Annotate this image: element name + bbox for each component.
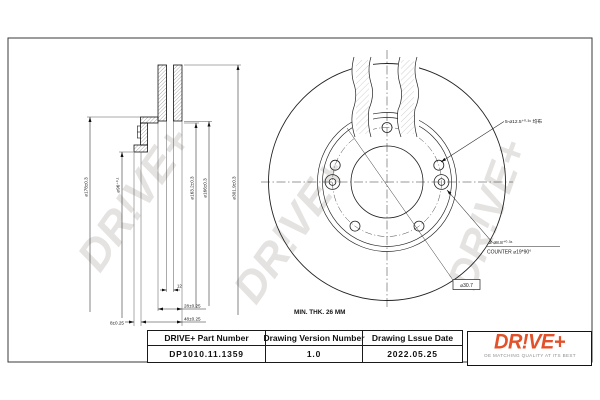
driveplus-logo: DR!VE+ OE MATCHING QUALITY AT ITS BEST: [467, 331, 592, 366]
countersink-note-line1: 2-⌀8.8⁺⁰·³⁶: [489, 240, 512, 246]
issue-date-value: 2022.05.25: [363, 346, 462, 362]
dim-label-outer-diameter: ⌀301.9±0.3: [232, 176, 237, 200]
dim-label-flange-thickness: 8±0.25: [110, 321, 124, 326]
dim-label-inner-diameter-2: ⌀166±0.3: [203, 178, 208, 198]
watermark-text: DR!VE+: [68, 118, 201, 279]
countersink-note-line2: COUNTER ⌀19*90°: [487, 250, 531, 256]
dim-label-vent-width: 12: [177, 284, 182, 289]
issue-date-header: Drawing Lssue Date: [363, 331, 462, 346]
version-header: Drawing Version Number: [266, 331, 363, 346]
watermark-text: DR!VE+: [438, 133, 535, 295]
version-value: 1.0: [266, 346, 363, 362]
bolt-holes-note: 5-⌀12.5⁺⁰·³⁶ 均布: [505, 118, 542, 125]
driveplus-logo-wordmark: DR!VE+: [468, 330, 591, 353]
dim-label-overall-height: 48±0.25: [184, 317, 201, 322]
dim-label-inner-diameter-1: ⌀163.2±0.3: [190, 176, 195, 200]
min-thickness-note: MIN. THK. 26 MM: [294, 309, 345, 316]
dim-label-bore-diameter: ⌀96⁺⁰·¹: [116, 177, 121, 193]
break-section: [352, 56, 419, 138]
part-number-value: DP1010.11.1359: [148, 346, 266, 362]
part-number-header: DRIVE+ Part Number: [148, 331, 266, 346]
dim-label-flange-diameter: ⌀178±0.3: [84, 177, 89, 197]
title-block-table: DRIVE+ Part Number Drawing Version Numbe…: [147, 330, 463, 363]
driveplus-logo-tagline: OE MATCHING QUALITY AT ITS BEST: [484, 353, 576, 358]
reference-dim-label: ⌀30.7: [460, 283, 473, 289]
dim-label-thickness: 28±0.25: [184, 304, 201, 309]
